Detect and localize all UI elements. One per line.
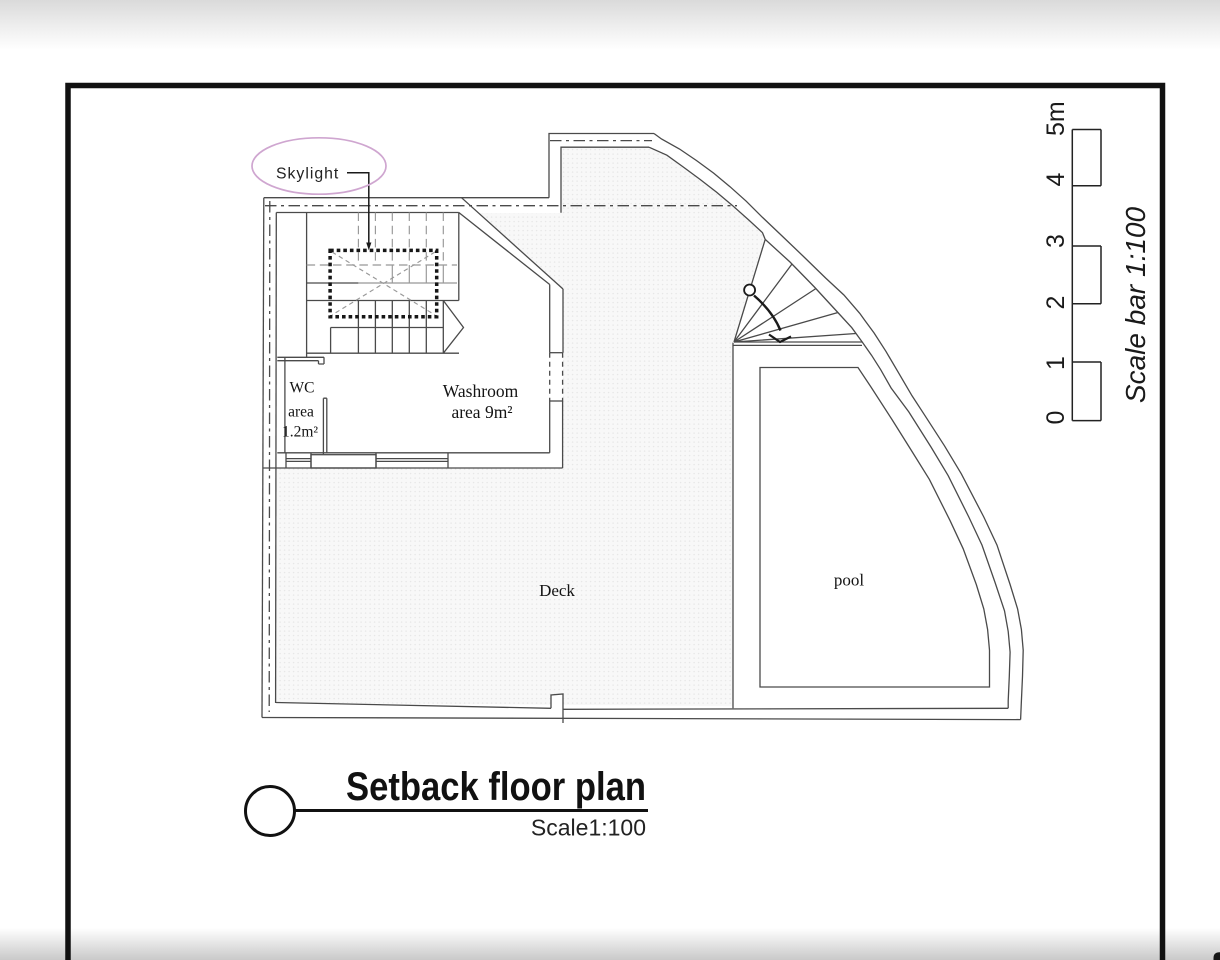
svg-text:WC: WC <box>290 380 315 397</box>
svg-text:5m: 5m <box>1042 101 1070 136</box>
svg-text:3: 3 <box>1042 234 1070 248</box>
svg-text:area 9m²: area 9m² <box>451 402 512 422</box>
svg-text:Skylight: Skylight <box>276 166 339 183</box>
svg-text:Washroom: Washroom <box>443 381 519 401</box>
svg-text:area: area <box>288 404 314 421</box>
svg-text:Scale bar 1:100: Scale bar 1:100 <box>1120 207 1151 404</box>
svg-text:2: 2 <box>1042 296 1070 310</box>
svg-text:Deck: Deck <box>539 581 575 600</box>
svg-text:pool: pool <box>834 571 865 590</box>
svg-text:Scale1:100: Scale1:100 <box>531 815 646 841</box>
svg-text:Setback floor plan: Setback floor plan <box>346 765 646 809</box>
svg-text:1.2m²: 1.2m² <box>282 424 318 441</box>
svg-text:1: 1 <box>1042 356 1070 370</box>
svg-text:4: 4 <box>1042 172 1070 186</box>
svg-text:0: 0 <box>1042 411 1070 425</box>
